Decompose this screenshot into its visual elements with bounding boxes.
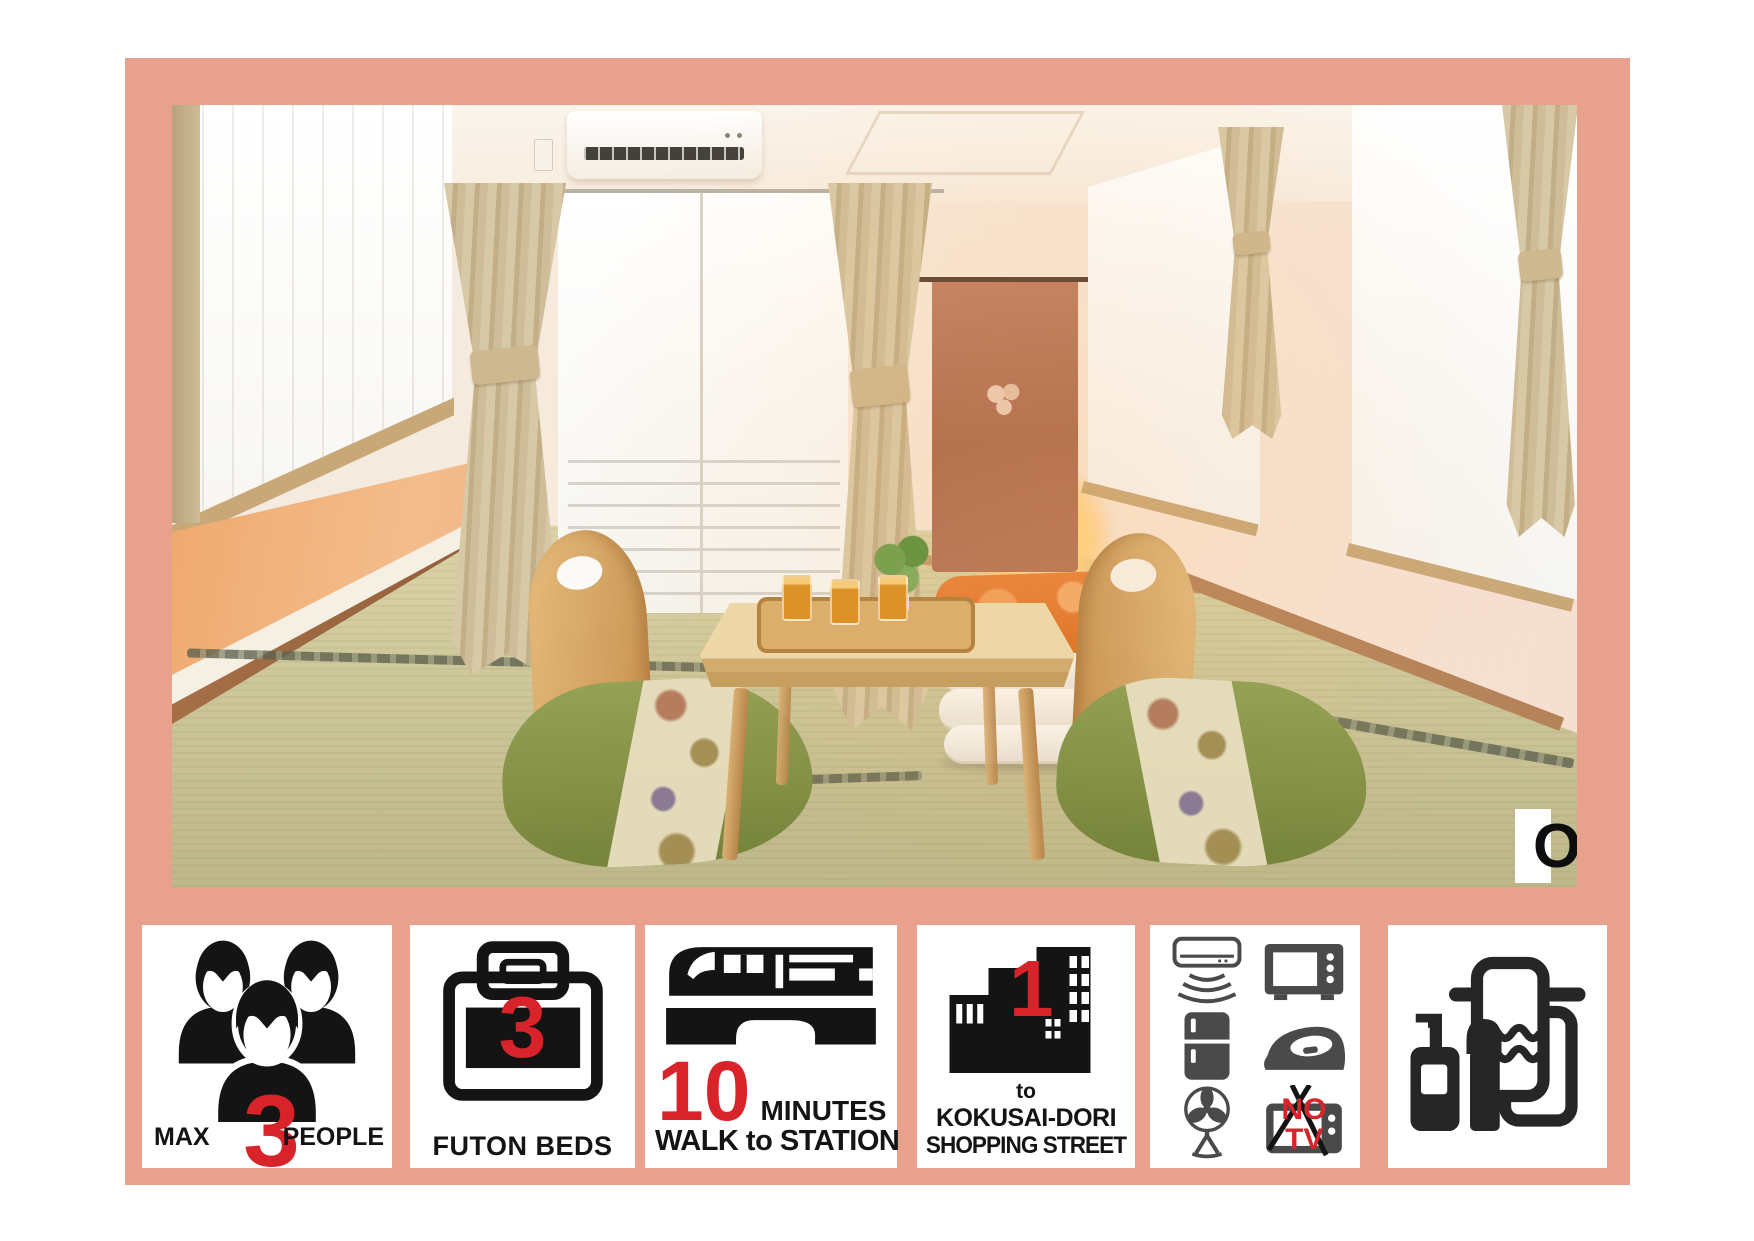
train-icon [657, 935, 885, 1049]
badge-appliances: NO TV [1150, 925, 1360, 1168]
fridge-icon [1177, 1009, 1237, 1083]
no-tv-cell: NO TV [1258, 1085, 1350, 1157]
badge-walk-station: 10 MINUTES WALK to STATION [645, 925, 897, 1168]
people-label: PEOPLE [283, 1125, 384, 1150]
microwave-cell [1258, 936, 1350, 1008]
room-photo: On the 3rd floor [172, 105, 1577, 887]
shopping-label: MINUTE to KOKUSAI-DORI SHOPPING STREET [917, 1051, 1135, 1160]
no-tv-text: NO [1281, 1095, 1326, 1125]
salmon-frame: On the 3rd floor [125, 58, 1630, 1185]
badge-max-people: MAX 3 PEOPLE [142, 925, 392, 1168]
listing-poster: On the 3rd floor [0, 0, 1754, 1241]
iron-icon [1260, 1013, 1348, 1079]
badge-futon-beds: 3 FUTON BEDS [410, 925, 635, 1168]
tea-glass [782, 575, 812, 621]
max-label: MAX [154, 1125, 210, 1150]
microwave-icon [1261, 938, 1347, 1006]
badge-amenities [1388, 925, 1607, 1168]
ac-icon [1164, 934, 1250, 1010]
no-tv-text: TV [1285, 1125, 1323, 1155]
fan-icon [1176, 1083, 1238, 1159]
tea-glass [878, 575, 908, 621]
fan-cell [1161, 1085, 1253, 1157]
badge-shopping-street: 1 MINUTE to KOKUSAI-DORI SHOPPING STREET [917, 925, 1135, 1168]
floor-label-text: On the 3rd floor [1533, 811, 1577, 882]
walk-minutes-unit: MINUTES [760, 1095, 886, 1127]
ac-cell [1161, 936, 1253, 1008]
iron-cell [1258, 1010, 1350, 1082]
warm-light-overlay [172, 105, 1577, 887]
shopping-minutes-count: 1 [1009, 949, 1054, 1029]
floor-label-banner: On the 3rd floor [1515, 809, 1551, 883]
futon-label: FUTON BEDS [432, 1133, 612, 1160]
walk-minutes-count: 10 [657, 1049, 750, 1133]
futon-count: 3 [499, 985, 547, 1071]
walk-station-label: WALK to STATION [655, 1127, 899, 1156]
tea-glass [830, 579, 860, 625]
fridge-cell [1161, 1010, 1253, 1082]
towel-amenities-icon [1400, 941, 1596, 1153]
